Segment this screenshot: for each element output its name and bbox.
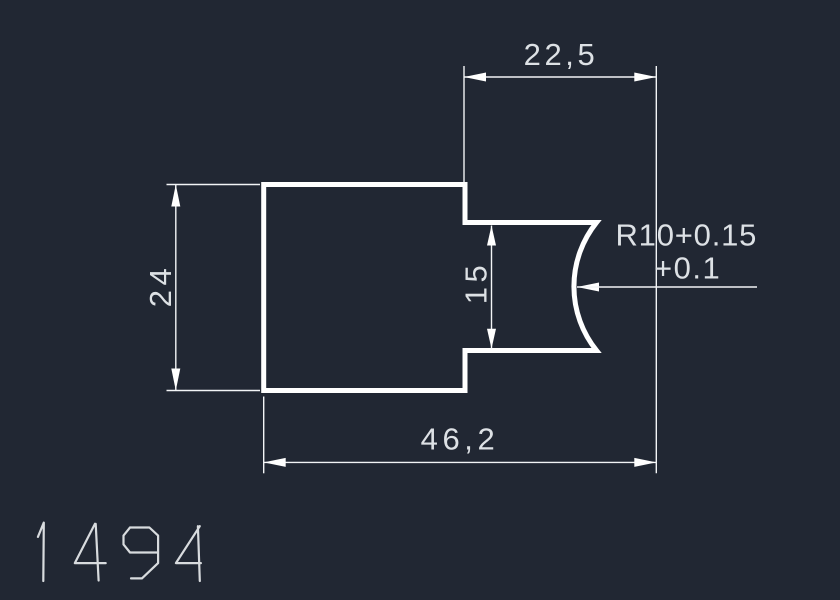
svg-text:15: 15: [459, 261, 494, 304]
svg-text:46,2: 46,2: [421, 422, 500, 457]
svg-text:24: 24: [143, 264, 178, 307]
svg-text:+0.1: +0.1: [654, 251, 721, 286]
svg-text:22,5: 22,5: [524, 37, 599, 72]
svg-text:R10+0.15: R10+0.15: [616, 218, 758, 253]
